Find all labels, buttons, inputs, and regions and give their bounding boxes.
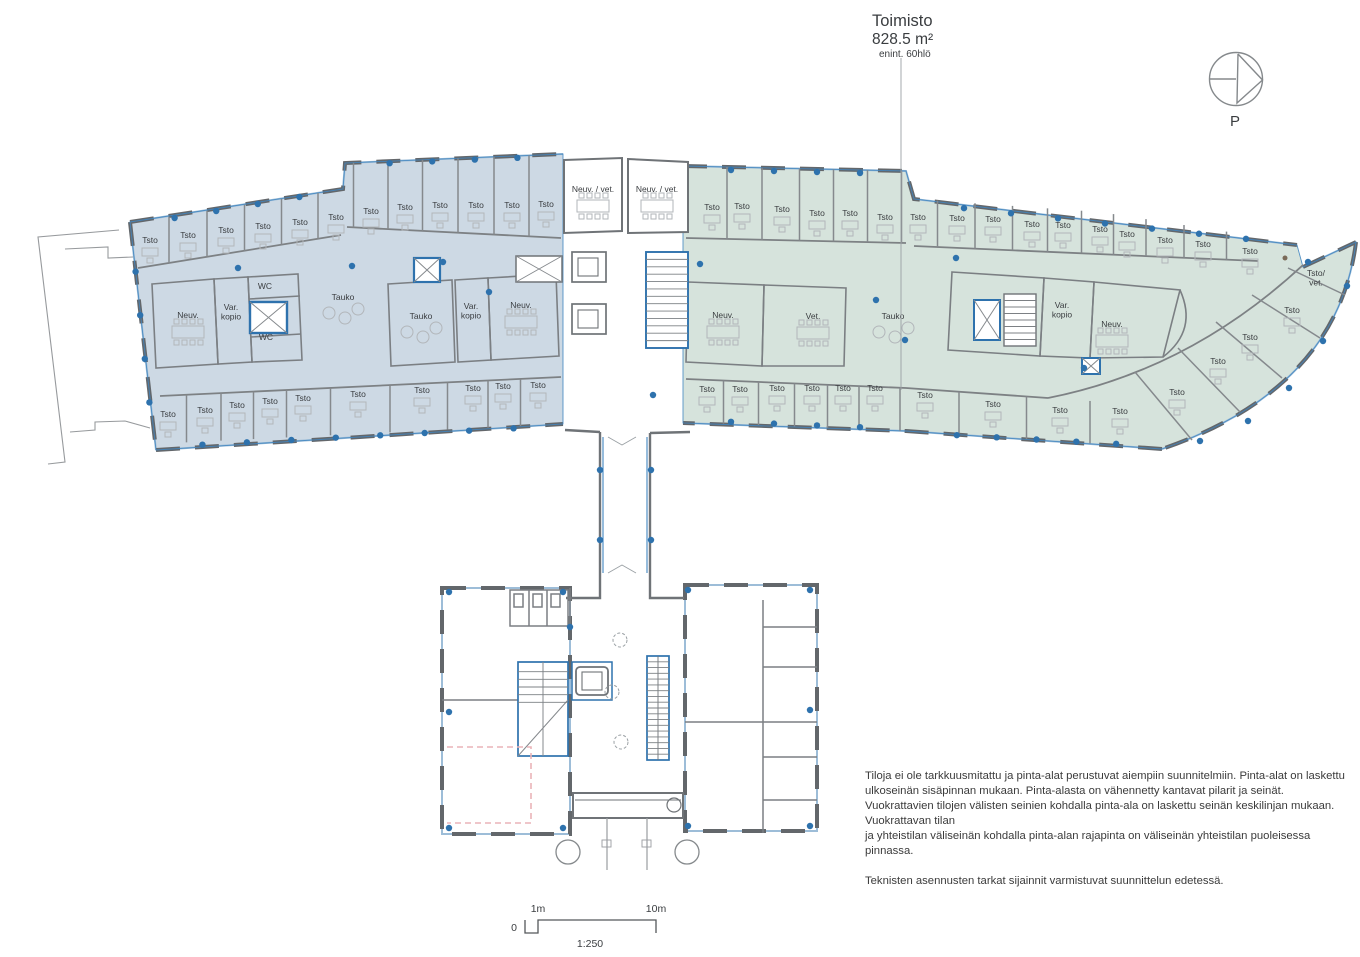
wall-dot bbox=[1196, 231, 1202, 237]
room-label: Tsto bbox=[530, 380, 546, 390]
room-label: Tsto bbox=[255, 221, 271, 231]
wall-dot bbox=[771, 168, 777, 174]
wall-dot bbox=[1149, 225, 1155, 231]
plan-area: 828.5 m² bbox=[872, 31, 933, 48]
room-label: Tsto bbox=[1092, 224, 1108, 234]
room-label: Tsto bbox=[414, 385, 430, 395]
left-wing bbox=[130, 154, 563, 450]
notes-paragraph-1: Tiloja ei ole tarkkuusmitattu ja pinta-a… bbox=[865, 769, 1351, 859]
room-label: Tsto bbox=[495, 381, 511, 391]
room-label: Neuv. bbox=[177, 310, 199, 320]
wall-dot bbox=[333, 434, 339, 440]
room-label: Tsto bbox=[1169, 387, 1185, 397]
room-label: Neuv. bbox=[1101, 319, 1123, 329]
wall-dot bbox=[235, 265, 241, 271]
room-label: Tsto bbox=[1157, 235, 1173, 245]
room-label: Tsto bbox=[1055, 220, 1071, 230]
wall-dot bbox=[560, 825, 566, 831]
room-label: Tauko bbox=[332, 292, 355, 302]
room-label: Tsto bbox=[867, 383, 883, 393]
room-label: Tsto bbox=[699, 384, 715, 394]
room-label: Tsto bbox=[877, 212, 893, 222]
wall-dot bbox=[1344, 283, 1350, 289]
north-pointer-icon bbox=[1210, 54, 1263, 103]
wall-dot bbox=[567, 624, 573, 630]
wall-dot bbox=[377, 432, 383, 438]
wall-dot bbox=[132, 268, 138, 274]
title-block: Toimisto 828.5 m² enint. 60hlö bbox=[872, 12, 933, 60]
wall-dot bbox=[1113, 441, 1119, 447]
room-label: Tsto bbox=[218, 225, 234, 235]
scale-bar-line bbox=[525, 920, 656, 933]
room-label: Tsto bbox=[1195, 239, 1211, 249]
wall-dot bbox=[961, 205, 967, 211]
room-label: Tsto bbox=[292, 217, 308, 227]
wall-dot bbox=[728, 419, 734, 425]
room-label: Tsto bbox=[538, 199, 554, 209]
room-label: Tsto bbox=[468, 200, 484, 210]
room-label: Tsto bbox=[1284, 305, 1300, 315]
wall-dot bbox=[648, 467, 654, 473]
wall-dot bbox=[807, 587, 813, 593]
wall-dot bbox=[146, 399, 152, 405]
wall-dot bbox=[873, 297, 879, 303]
core-x-box bbox=[516, 256, 562, 282]
wall-dot bbox=[472, 156, 478, 162]
room-label: Tsto bbox=[295, 393, 311, 403]
wall-dot bbox=[213, 208, 219, 214]
room-label: Tsto bbox=[985, 214, 1001, 224]
wall-dot bbox=[1033, 436, 1039, 442]
room-label: Tsto bbox=[835, 383, 851, 393]
wall-dot bbox=[1320, 338, 1326, 344]
wall-dot bbox=[697, 261, 703, 267]
wall-dot bbox=[1286, 385, 1292, 391]
wall-dot bbox=[510, 425, 516, 431]
room-label: Tsto bbox=[774, 204, 790, 214]
room-label: Tsto/vet. bbox=[1307, 268, 1326, 288]
room-label: Tsto bbox=[197, 405, 213, 415]
room-label: Tsto bbox=[704, 202, 720, 212]
room-label: Tsto bbox=[504, 200, 520, 210]
wall-dot bbox=[446, 709, 452, 715]
wall-dot bbox=[807, 707, 813, 713]
scale-zero: 0 bbox=[511, 922, 517, 934]
room-label: Tsto bbox=[1119, 229, 1135, 239]
survey-dot bbox=[1283, 256, 1288, 261]
room-label: Tsto bbox=[363, 206, 379, 216]
wall-dot bbox=[807, 823, 813, 829]
north-arrow: P bbox=[1210, 53, 1263, 131]
room-label: Tsto bbox=[949, 213, 965, 223]
room-label: Tsto bbox=[769, 383, 785, 393]
wall-dot bbox=[1073, 438, 1079, 444]
room-label: Tsto bbox=[1052, 405, 1068, 415]
wall-dot bbox=[857, 170, 863, 176]
room-label: Neuv. bbox=[712, 310, 734, 320]
room-label: Tsto bbox=[910, 212, 926, 222]
wall-dot bbox=[142, 356, 148, 362]
room-label: Tsto bbox=[350, 389, 366, 399]
room-label: Neuv. / vet. bbox=[572, 184, 614, 194]
wall-dot bbox=[296, 194, 302, 200]
wall-dot bbox=[446, 589, 452, 595]
north-label: P bbox=[1230, 113, 1240, 130]
bottom-building bbox=[442, 588, 817, 870]
room-label: Tsto bbox=[1112, 406, 1128, 416]
scale-bar: 0 1m 10m 1:250 bbox=[511, 903, 666, 950]
wall-dot bbox=[429, 158, 435, 164]
room-label: WC bbox=[258, 281, 272, 291]
wall-dot bbox=[648, 537, 654, 543]
plan-capacity: enint. 60hlö bbox=[879, 49, 931, 60]
scale-one: 1m bbox=[531, 903, 546, 915]
wall-dot bbox=[421, 430, 427, 436]
wall-dot bbox=[514, 155, 520, 161]
room-label: Tsto bbox=[917, 390, 933, 400]
wall-dot bbox=[728, 167, 734, 173]
room-label: Tsto bbox=[229, 400, 245, 410]
wall-dot bbox=[1305, 259, 1311, 265]
wall-dot bbox=[244, 439, 250, 445]
wall-dot bbox=[597, 467, 603, 473]
bottom-elevator bbox=[572, 662, 612, 700]
room-label: Tsto bbox=[1210, 356, 1226, 366]
wall-dot bbox=[685, 587, 691, 593]
room-label: Tsto bbox=[142, 235, 158, 245]
wall-dot bbox=[560, 589, 566, 595]
room-label: Tsto bbox=[732, 384, 748, 394]
room-label: Neuv. bbox=[510, 300, 532, 310]
wall-dot bbox=[288, 437, 294, 443]
wall-dot bbox=[857, 424, 863, 430]
room-label: Tsto bbox=[985, 399, 1001, 409]
room-label: Tsto bbox=[842, 208, 858, 218]
wall-dot bbox=[1008, 210, 1014, 216]
wall-dot bbox=[954, 432, 960, 438]
room-label: Tsto bbox=[262, 396, 278, 406]
wall-dot bbox=[466, 427, 472, 433]
core-elevators bbox=[572, 252, 606, 334]
room-label: Vet. bbox=[806, 311, 821, 321]
wall-dot bbox=[771, 420, 777, 426]
room-label: Neuv. / vet. bbox=[636, 184, 678, 194]
room-label: Tsto bbox=[432, 200, 448, 210]
wall-dot bbox=[349, 263, 355, 269]
plan-notes: Tiloja ei ole tarkkuusmitattu ja pinta-a… bbox=[865, 769, 1351, 889]
wall-dot bbox=[440, 259, 446, 265]
wall-dot bbox=[685, 823, 691, 829]
wall-dot bbox=[597, 537, 603, 543]
room-label: Tsto bbox=[397, 202, 413, 212]
room-label: Tsto bbox=[328, 212, 344, 222]
room-label: Tsto bbox=[1024, 219, 1040, 229]
room-label: Tsto bbox=[809, 208, 825, 218]
wall-dot bbox=[1081, 365, 1087, 371]
room-label: WC bbox=[259, 332, 273, 342]
wall-dot bbox=[650, 392, 656, 398]
pink-dashed-boundary bbox=[447, 747, 531, 823]
wall-dot bbox=[171, 215, 177, 221]
wall-dot bbox=[1243, 236, 1249, 242]
room-label: Tsto bbox=[160, 409, 176, 419]
wall-dot bbox=[814, 169, 820, 175]
wall-dot bbox=[137, 312, 143, 318]
plan-title: Toimisto bbox=[872, 12, 933, 30]
wall-dot bbox=[446, 825, 452, 831]
room-label: Tsto bbox=[804, 383, 820, 393]
wall-dot bbox=[486, 289, 492, 295]
room-label: Tsto bbox=[734, 201, 750, 211]
floor-plan-page: TstoTstoTstoTstoTstoTstoTstoTstoTstoTsto… bbox=[0, 0, 1360, 957]
room-label: Tauko bbox=[410, 311, 433, 321]
scale-ten: 10m bbox=[646, 903, 667, 915]
notes-paragraph-2: Teknisten asennusten tarkat sijainnit va… bbox=[865, 874, 1351, 889]
wall-dot bbox=[1197, 438, 1203, 444]
wall-dot bbox=[814, 422, 820, 428]
wall-dot bbox=[902, 337, 908, 343]
room-label: Tsto bbox=[1242, 246, 1258, 256]
room-label: Tsto bbox=[465, 383, 481, 393]
wall-dot bbox=[993, 434, 999, 440]
wall-dot bbox=[255, 201, 261, 207]
room-label: Tsto bbox=[1242, 332, 1258, 342]
scale-ratio: 1:250 bbox=[577, 938, 603, 950]
wall-dot bbox=[199, 441, 205, 447]
canopy bbox=[573, 793, 683, 818]
wall-dot bbox=[386, 160, 392, 166]
wall-dot bbox=[953, 255, 959, 261]
link-corridor bbox=[565, 430, 690, 598]
site-marks bbox=[556, 818, 699, 870]
wall-dot bbox=[1245, 418, 1251, 424]
room-label: Tsto bbox=[180, 230, 196, 240]
